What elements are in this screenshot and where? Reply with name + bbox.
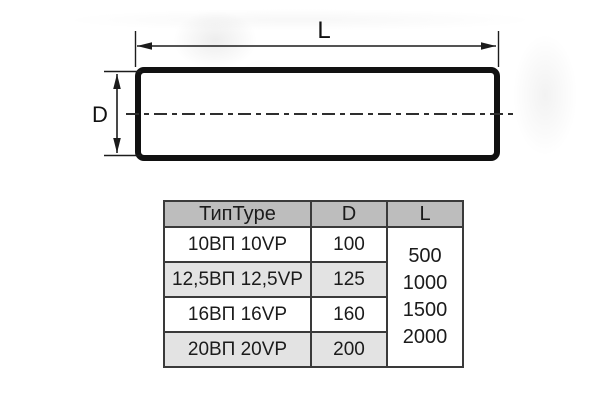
- cell-d: 125: [311, 262, 387, 297]
- cell-type: 20ВП 20VP: [164, 332, 311, 367]
- cell-d: 160: [311, 297, 387, 332]
- diameter-label: D: [92, 102, 108, 127]
- l-value: 2000: [388, 324, 462, 351]
- arrowhead-up-icon: [113, 74, 121, 89]
- arrowhead-down-icon: [113, 138, 121, 153]
- l-value: 500: [388, 243, 462, 270]
- col-header-type: ТипType: [164, 201, 311, 227]
- arrowhead-left-icon: [137, 42, 152, 49]
- duct-diagram: L D: [0, 0, 600, 195]
- cell-type: 16ВП 16VP: [164, 297, 311, 332]
- spec-table: ТипType D L 10ВП 10VP 100 500 1000 1500 …: [163, 200, 464, 368]
- l-value: 1500: [388, 297, 462, 324]
- table-row: 10ВП 10VP 100 500 1000 1500 2000: [164, 227, 463, 262]
- cell-type: 12,5ВП 12,5VP: [164, 262, 311, 297]
- cell-l-merged: 500 1000 1500 2000: [387, 227, 463, 367]
- col-header-l: L: [387, 201, 463, 227]
- cell-d: 100: [311, 227, 387, 262]
- cell-type: 10ВП 10VP: [164, 227, 311, 262]
- l-value: 1000: [388, 270, 462, 297]
- length-label: L: [317, 17, 330, 44]
- product-spec-sheet: L D ТипType D L 10ВП 10VP 100 500 1000 1…: [0, 0, 600, 400]
- table-header-row: ТипType D L: [164, 201, 463, 227]
- col-header-d: D: [311, 201, 387, 227]
- cell-d: 200: [311, 332, 387, 367]
- arrowhead-right-icon: [481, 42, 496, 49]
